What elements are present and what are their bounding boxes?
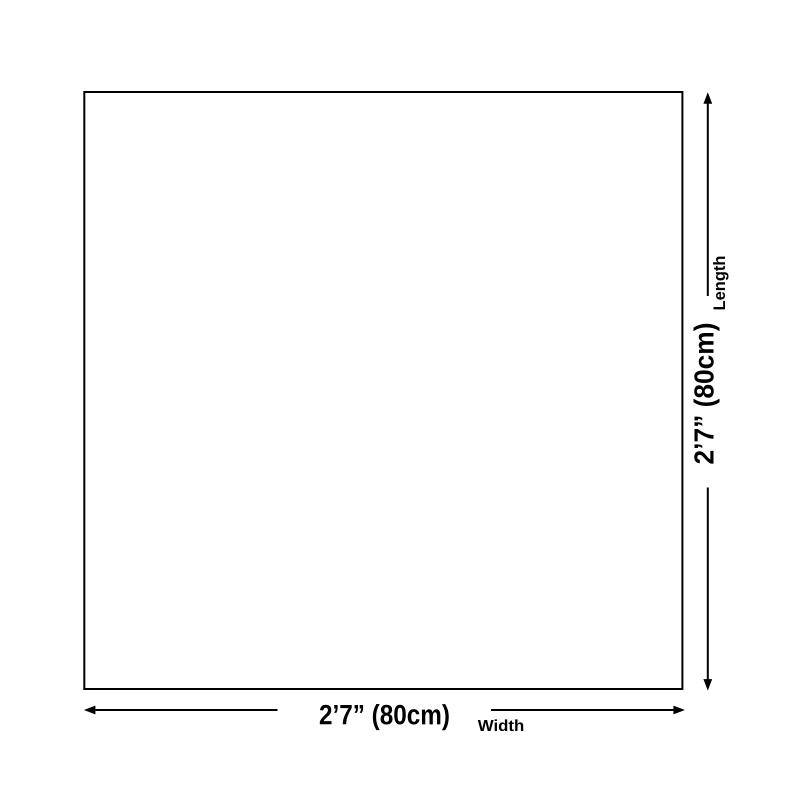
svg-text:Width: Width [478, 718, 525, 735]
svg-text:Length: Length [710, 256, 729, 311]
svg-text:2’7” (80cm): 2’7” (80cm) [319, 699, 450, 730]
svg-text:2’7” (80cm): 2’7” (80cm) [689, 323, 720, 465]
